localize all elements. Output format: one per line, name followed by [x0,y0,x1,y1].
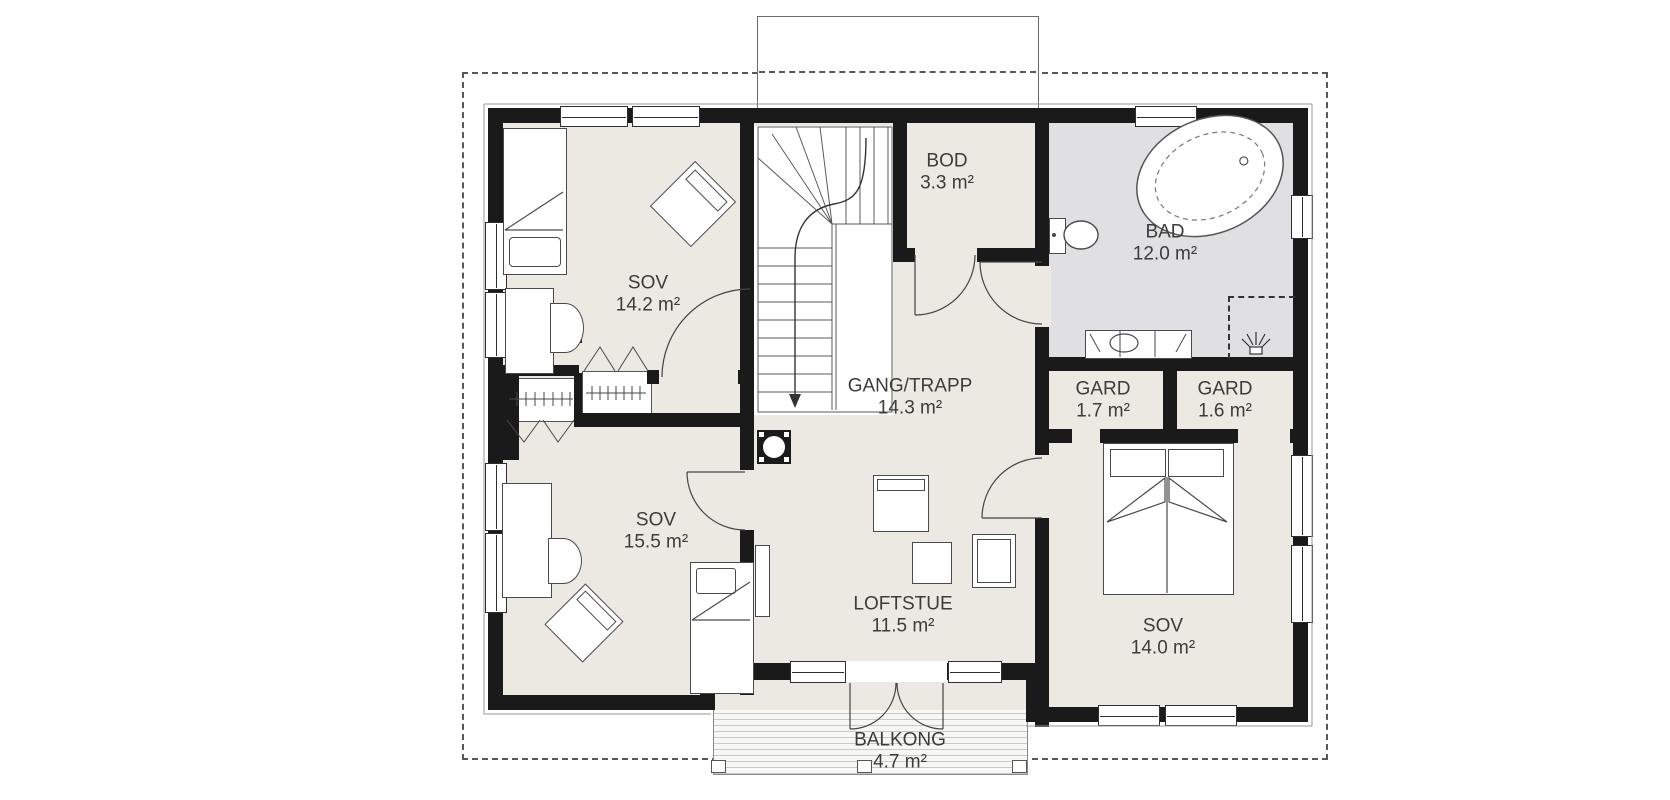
room-label-sov-15-5: SOV15.5 m² [624,510,688,553]
pillow [509,237,561,267]
toilet-cistern [1049,218,1066,254]
pillow [1110,449,1166,477]
door-opening-bad [1033,266,1051,327]
wall-west [488,108,503,710]
room-label-bod: BOD3.3 m² [920,151,974,194]
window [1135,106,1197,127]
window [1291,195,1313,239]
stairwell-floor [754,126,893,415]
room-label-sov-14-2: SOV14.2 m² [616,273,680,316]
window [790,661,846,683]
closet-right [582,371,652,417]
door-opening-sov140 [1033,455,1051,518]
window [948,661,1002,683]
opening-gard16 [1238,427,1290,445]
dormer-outline [757,16,1039,110]
balcony-door-opening [846,661,947,682]
room-label-loftstue: LOFTSTUE11.5 m² [853,594,952,637]
floor-plan: SOV14.2 m² SOV15.5 m² SOV14.0 m² BOD3.3 … [0,0,1670,800]
window [1291,545,1313,623]
wall-stair-east [893,108,907,258]
desk [505,288,554,374]
window [560,106,628,127]
balcony-post [711,760,726,773]
shower-zone [1228,296,1295,359]
chair [972,534,1016,588]
wall-pier-west [503,367,519,460]
window [632,106,700,127]
desk [502,483,552,598]
window [1098,705,1160,726]
pillow [696,568,736,594]
room-label-balkong: BALKONG4.7 m² [854,730,946,773]
wall-bad-west-upper [1035,108,1049,268]
window [1291,455,1313,537]
wall-panel [755,545,770,617]
room-label-gard-1-6: GARD1.6 m² [1198,379,1253,422]
door-opening-bod [915,246,977,264]
side-table [912,542,952,584]
room-label-sov-14-0: SOV14.0 m² [1131,616,1195,659]
wall-south-left-wing [488,695,715,710]
chimney-flue [757,430,791,464]
roof-outline-dash-through-dormer [759,71,1036,73]
wall-bad-south [1035,357,1293,371]
pillow [1168,449,1224,477]
sofa [873,475,929,532]
balcony-post [1012,760,1027,773]
wall-gard-divider [1163,371,1177,433]
window [1165,705,1237,726]
room-label-gard-1-7: GARD1.7 m² [1076,379,1131,422]
wall-closet-south [578,413,754,427]
room-label-bad: BAD12.0 m² [1133,222,1197,265]
opening-gard17 [1072,427,1100,445]
room-label-gang-trapp: GANG/TRAPP14.3 m² [848,376,973,419]
door-opening-sov155 [738,470,756,530]
wall-sov142-door-jamb-left [647,370,659,384]
window [485,292,507,358]
bathroom-vanity [1085,330,1192,359]
wall-gang-sov140 [1035,371,1049,727]
